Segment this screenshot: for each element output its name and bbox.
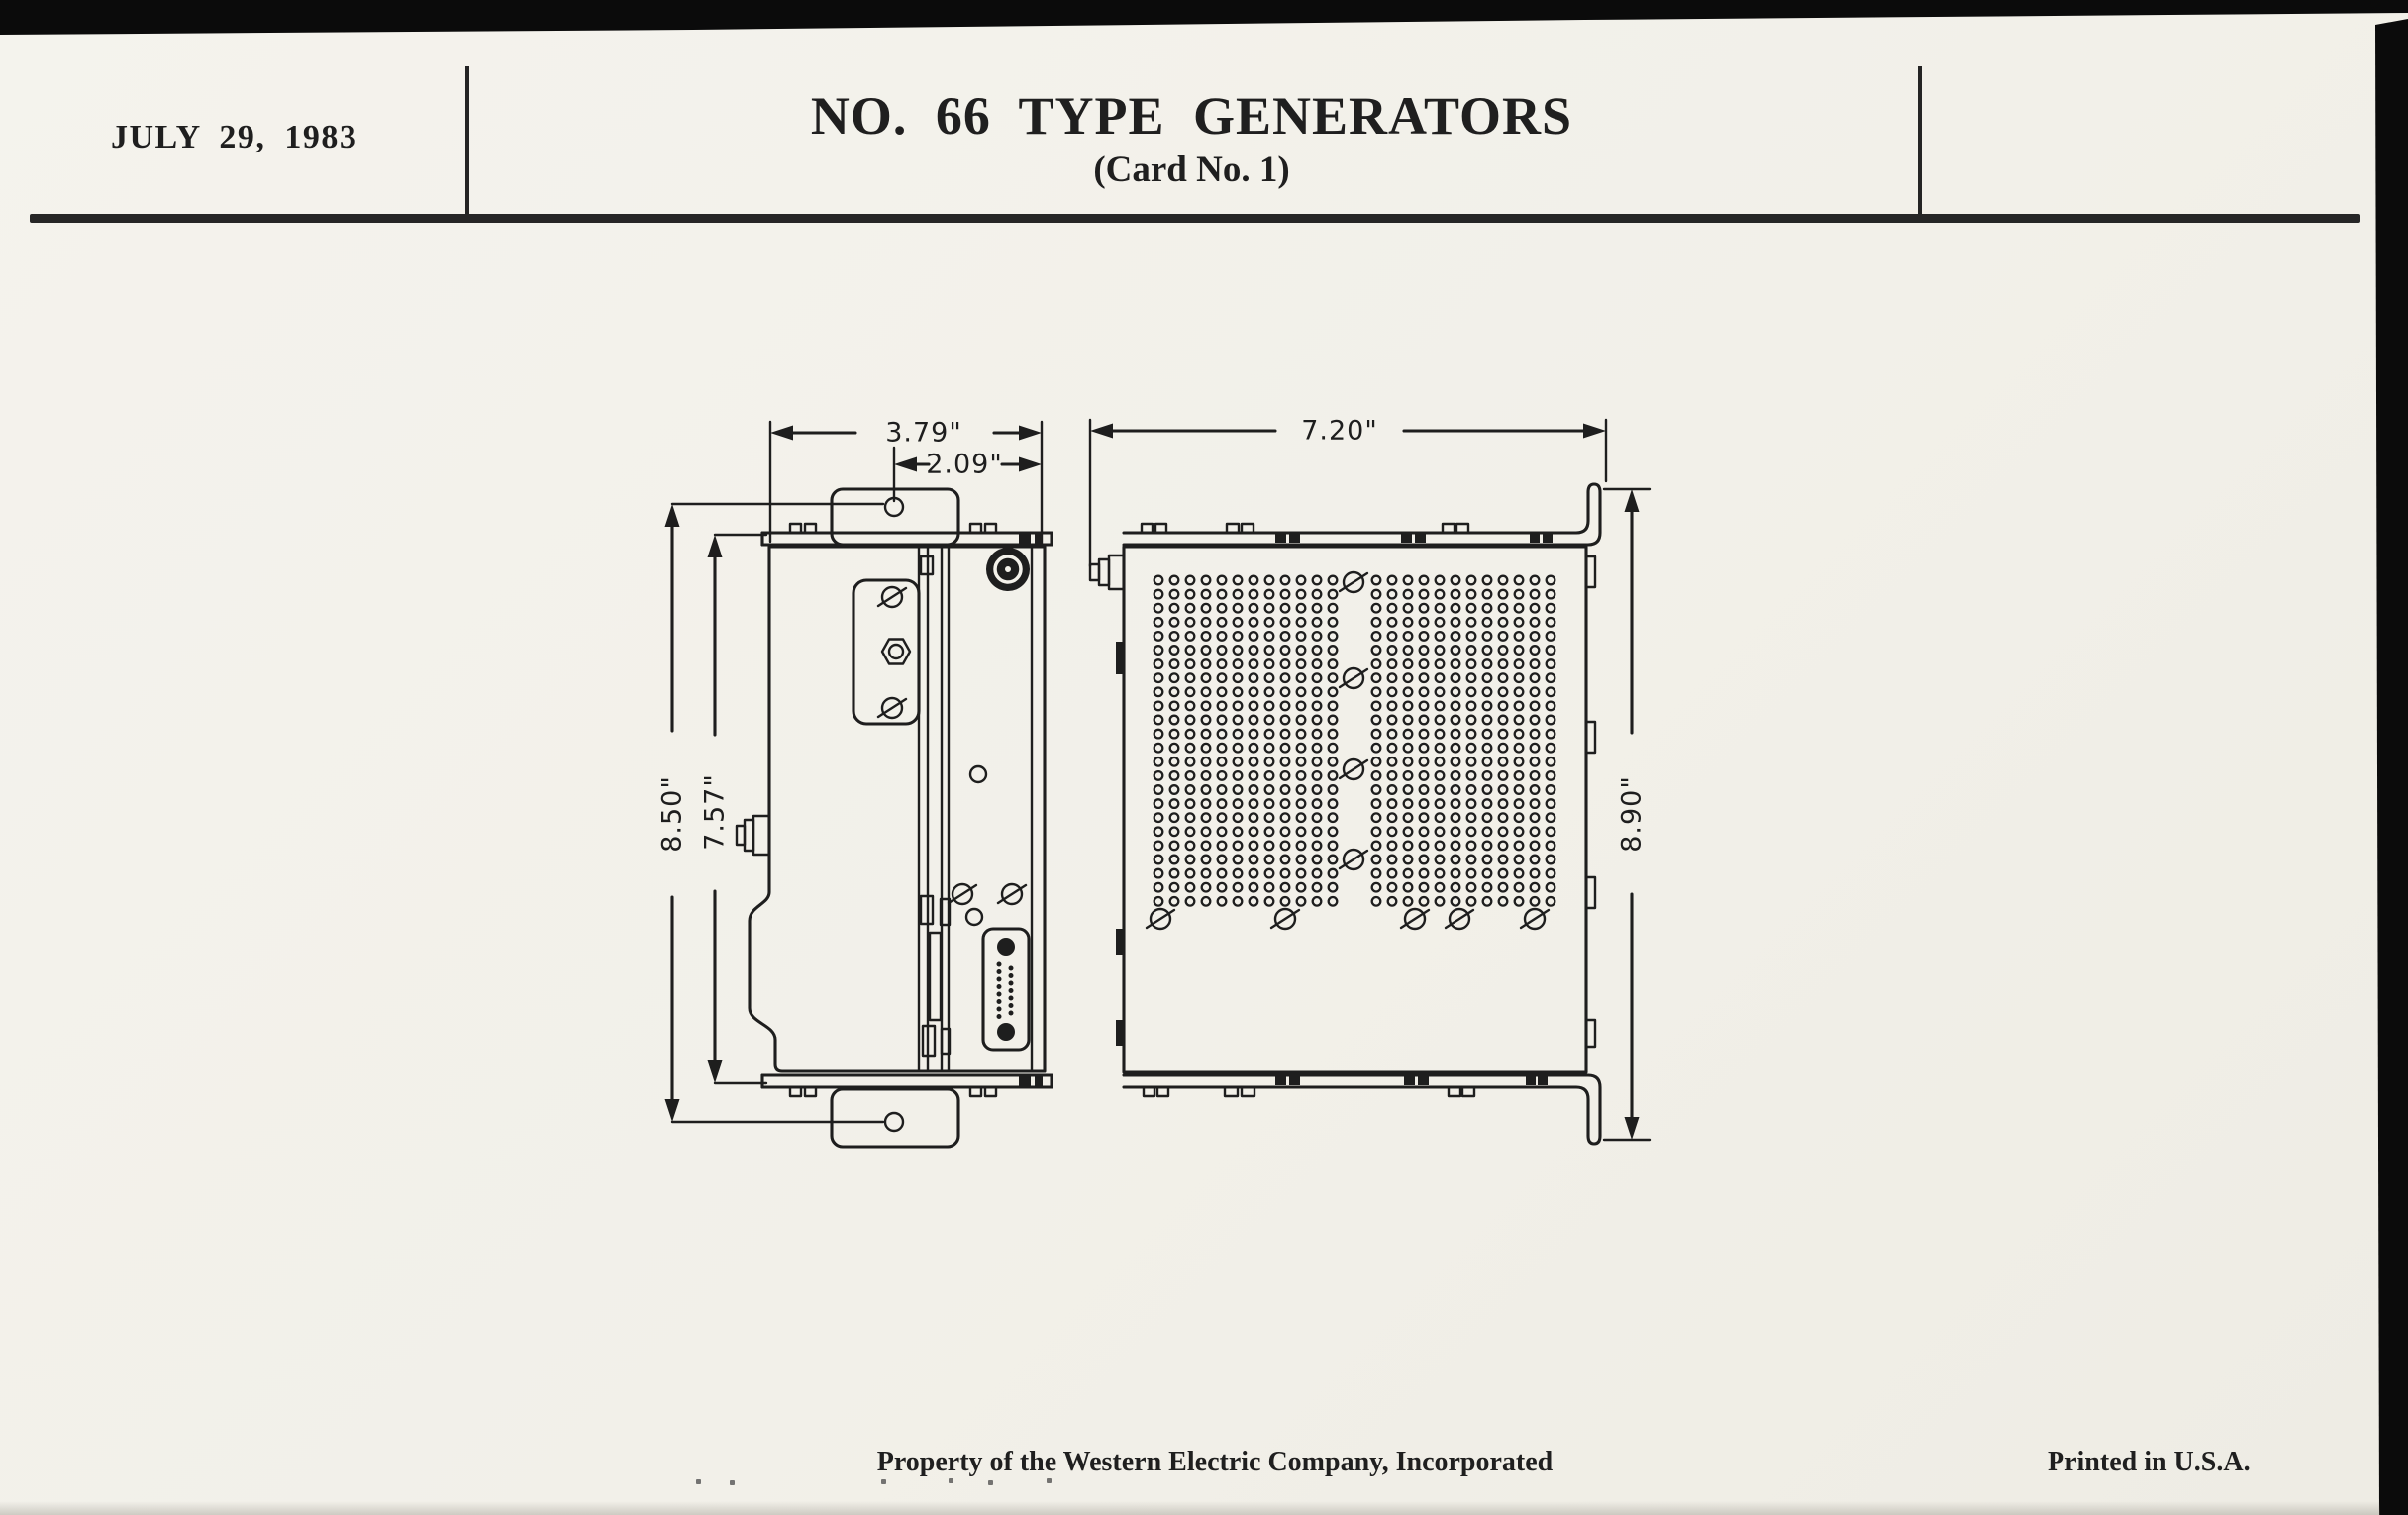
scan-speck <box>1047 1478 1052 1483</box>
scan-speck <box>696 1479 701 1484</box>
scan-speck <box>988 1480 993 1485</box>
scan-edge-top <box>0 0 2408 35</box>
scan-speck <box>949 1478 953 1483</box>
scan-speck <box>730 1480 735 1485</box>
scan-speck <box>881 1479 886 1484</box>
scan-artifacts <box>0 0 2408 1515</box>
scan-edge-right <box>2375 19 2408 1515</box>
scanned-equipment-card: 3.79" 2.09" 8.50" 7.57" <box>0 0 2408 1515</box>
scan-edge-bottom <box>0 1501 2380 1515</box>
